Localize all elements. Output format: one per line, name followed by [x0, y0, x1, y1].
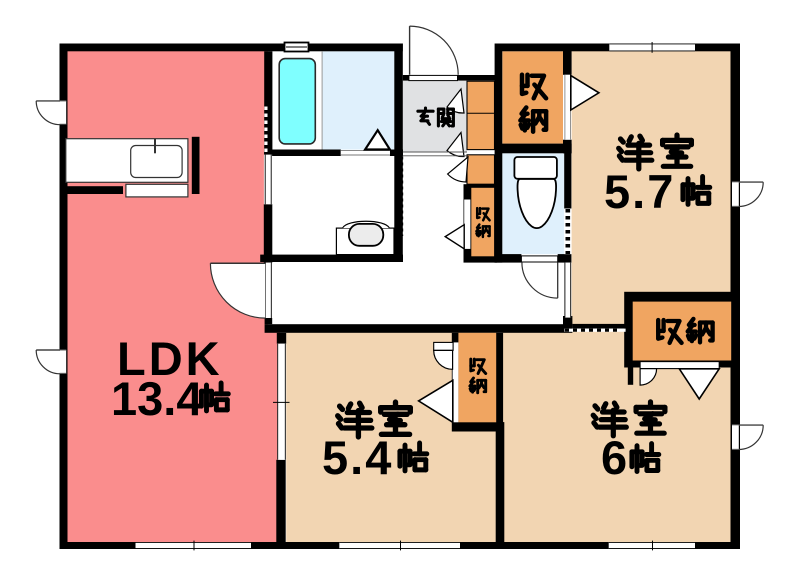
svg-text:5.7: 5.7	[604, 165, 675, 218]
svg-text:13.4: 13.4	[111, 372, 202, 425]
svg-text:6: 6	[601, 431, 627, 484]
